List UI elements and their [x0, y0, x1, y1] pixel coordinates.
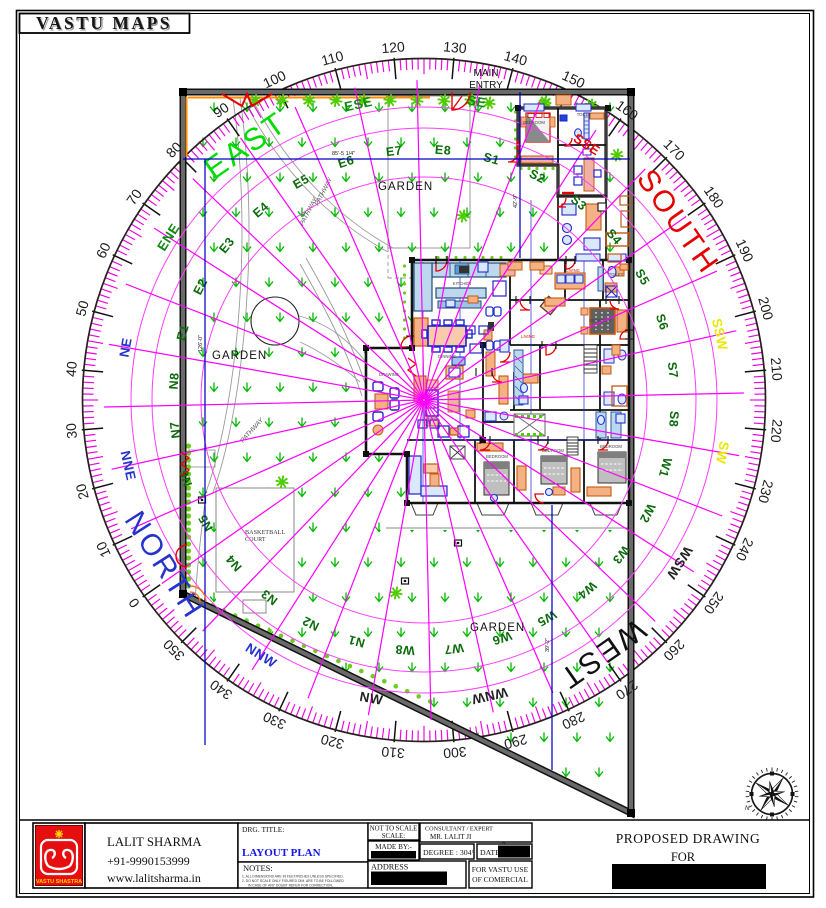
- svg-text:NOT TO SCALE: NOT TO SCALE: [370, 826, 418, 833]
- svg-text:MAIN: MAIN: [474, 68, 499, 79]
- svg-text:TOILET: TOILET: [609, 272, 624, 277]
- svg-text:VASTU SHASTRA: VASTU SHASTRA: [36, 879, 82, 885]
- svg-text:1. ALL DIMENSIONS ARE IN FEET/: 1. ALL DIMENSIONS ARE IN FEET/INCHES UNL…: [242, 875, 344, 879]
- svg-text:E8: E8: [434, 143, 451, 158]
- svg-text:BASKETBALL: BASKETBALL: [245, 529, 285, 536]
- svg-text:126'-0": 126'-0": [198, 335, 204, 352]
- svg-text:OF COMERCIAL: OF COMERCIAL: [472, 875, 528, 884]
- svg-text:220: 220: [768, 419, 786, 444]
- svg-text:BEDROOM: BEDROOM: [486, 454, 508, 459]
- svg-text:N: N: [745, 806, 750, 812]
- svg-text:ADDRESS: ADDRESS: [371, 863, 409, 872]
- svg-text:FOR: FOR: [671, 850, 696, 864]
- svg-text:+91-9990153999: +91-9990153999: [107, 854, 190, 868]
- svg-text:PROPOSED DRAWING: PROPOSED DRAWING: [616, 831, 761, 846]
- svg-text:GARDEN: GARDEN: [470, 622, 525, 634]
- svg-text:LIVING: LIVING: [521, 334, 535, 339]
- svg-text:MADE BY:-: MADE BY:-: [375, 843, 412, 851]
- svg-text:W8: W8: [395, 642, 416, 657]
- svg-text:E7: E7: [385, 143, 403, 159]
- svg-text:IN CASE OF ANY DOUBT REFER FOR: IN CASE OF ANY DOUBT REFER FOR CORRECTIO…: [248, 884, 333, 888]
- svg-text:40: 40: [63, 360, 80, 377]
- svg-text:DRG. TITLE:: DRG. TITLE:: [242, 825, 284, 834]
- svg-text:GARDEN: GARDEN: [378, 181, 433, 193]
- svg-text:BEDROOM: BEDROOM: [523, 120, 545, 125]
- svg-text:N8: N8: [167, 372, 182, 390]
- svg-text:LALIT SHARMA: LALIT SHARMA: [107, 835, 202, 849]
- svg-text:LAYOUT PLAN: LAYOUT PLAN: [242, 847, 321, 859]
- svg-text:2. DO NOT SCALE ONLY FIGURED D: 2. DO NOT SCALE ONLY FIGURED DIM. ARE TO…: [242, 879, 344, 883]
- svg-text:85'-5 1/4": 85'-5 1/4": [332, 151, 355, 157]
- svg-text:FOR VASTU USE: FOR VASTU USE: [472, 865, 529, 874]
- svg-text:120: 120: [381, 38, 406, 56]
- svg-text:CONSULTANT / EXPERT: CONSULTANT / EXPERT: [425, 826, 493, 833]
- svg-text:NOTES:: NOTES:: [243, 863, 273, 873]
- svg-text:TOILET: TOILET: [577, 112, 592, 117]
- svg-text:ENTRY: ENTRY: [469, 80, 503, 91]
- svg-text:www.lalitsharma.in: www.lalitsharma.in: [107, 871, 201, 885]
- svg-text:130: 130: [443, 38, 468, 56]
- svg-text:SCALE:: SCALE:: [382, 833, 406, 840]
- svg-text:N7: N7: [167, 421, 183, 440]
- svg-text:MR. LALIT JI: MR. LALIT JI: [430, 833, 472, 841]
- svg-text:42'-9": 42'-9": [513, 194, 519, 208]
- svg-text:39'-2": 39'-2": [545, 638, 551, 652]
- svg-text:300: 300: [442, 744, 467, 762]
- svg-text:DEGREE : 304°: DEGREE : 304°: [423, 848, 475, 857]
- svg-text:S7: S7: [665, 361, 681, 379]
- svg-text:30: 30: [63, 422, 80, 439]
- svg-text:W7: W7: [443, 641, 464, 657]
- svg-text:VASTU MAPS: VASTU MAPS: [36, 13, 172, 33]
- svg-text:S8: S8: [666, 410, 681, 427]
- svg-text:GARDEN: GARDEN: [212, 350, 267, 362]
- svg-text:BEDROOM: BEDROOM: [600, 444, 622, 449]
- svg-text:LIVING: LIVING: [566, 268, 580, 273]
- svg-text:310: 310: [381, 744, 406, 762]
- svg-text:210: 210: [768, 357, 786, 382]
